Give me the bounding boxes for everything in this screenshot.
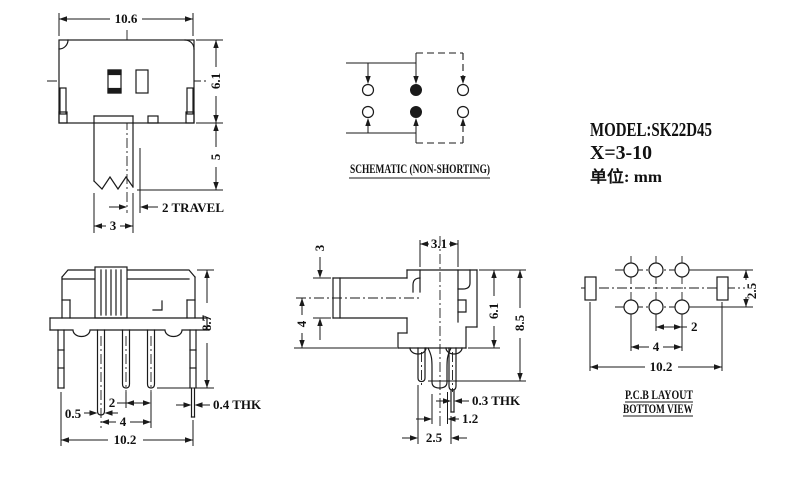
side-view: 8.7 0.5 2 4 10.2 0.4 THK — [50, 267, 262, 447]
schematic-view: SCHEMATIC (NON-SHORTING) — [346, 53, 490, 178]
dim-end-tab-width: 1.2 — [462, 411, 478, 426]
dim-end-knob-offset: 4 — [294, 320, 309, 327]
dim-front-width: 10.6 — [115, 11, 138, 26]
dim-side-pin-pitch: 2 — [109, 395, 116, 410]
dim-front-stem-height: 5 — [208, 153, 223, 160]
technical-drawing-canvas: 10.6 6.1 5 2 TRAVEL 3 — [0, 0, 800, 480]
pcb-bottom-view-label: BOTTOM VIEW — [623, 402, 693, 416]
pcb-holes — [585, 263, 728, 314]
dim-front-body-height: 6.1 — [208, 73, 223, 89]
model-number: MODEL:SK22D45 — [590, 119, 712, 141]
dim-front-travel: 2 TRAVEL — [162, 200, 224, 215]
drawing-sheet: 10.6 6.1 5 2 TRAVEL 3 — [0, 0, 800, 480]
unit-label: 单位: mm — [590, 167, 663, 186]
dim-end-body-width: 3.1 — [431, 236, 447, 251]
end-view-arrowheads — [299, 241, 522, 440]
dim-end-body-height: 6.1 — [486, 303, 501, 319]
dim-side-overall-width: 10.2 — [114, 432, 137, 447]
dim-pcb-overall-width: 10.2 — [650, 359, 673, 374]
side-view-outline — [50, 267, 207, 417]
schematic-arrowheads — [365, 76, 465, 126]
pcb-layout-title: P.C.B LAYOUT — [625, 388, 694, 402]
schematic-solid-wires — [346, 53, 416, 143]
dim-side-overall-height: 8.7 — [199, 314, 214, 331]
front-view-outline — [59, 40, 194, 189]
dim-front-stem-width: 3 — [110, 218, 117, 233]
pcb-layout-view: 2.5 2 4 10.2 P.C.B LAYOUT BOTTOM VIEW — [581, 256, 759, 416]
dim-pcb-hole-span: 4 — [653, 339, 660, 354]
schematic-terminals — [363, 85, 469, 118]
dim-end-knob-height: 3 — [312, 244, 327, 251]
front-view: 10.6 6.1 5 2 TRAVEL 3 — [47, 11, 224, 233]
side-view-dimension-lines — [61, 270, 214, 446]
dim-end-thickness: 0.3 THK — [472, 393, 521, 408]
dim-side-pin-span: 4 — [120, 414, 127, 429]
dim-side-thickness: 0.4 THK — [213, 397, 262, 412]
end-view-centerlines — [296, 236, 453, 428]
end-view-outline — [333, 270, 477, 412]
dim-side-pin-width: 0.5 — [65, 406, 82, 421]
dim-pcb-row-pitch: 2.5 — [744, 282, 759, 299]
side-view-arrowheads — [61, 270, 210, 443]
dim-end-overall-height: 8.5 — [512, 314, 527, 331]
dim-end-pin-spacing: 2.5 — [426, 430, 443, 445]
end-view: 3 4 3.1 6.1 8.5 0.3 THK 1.2 2.5 — [294, 236, 527, 445]
schematic-dashed-wires — [416, 53, 463, 143]
x-range: X=3-10 — [590, 142, 652, 164]
title-block: MODEL:SK22D45 X=3-10 单位: mm — [590, 119, 712, 186]
schematic-title: SCHEMATIC (NON-SHORTING) — [350, 162, 490, 176]
dim-pcb-hole-pitch: 2 — [691, 319, 698, 334]
